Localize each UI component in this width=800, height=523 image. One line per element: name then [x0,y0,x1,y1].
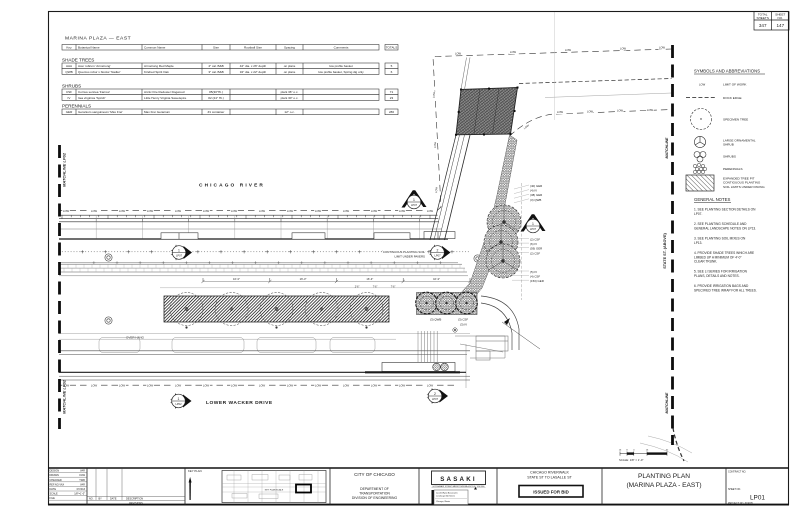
svg-text:LOW: LOW [557,110,563,114]
svg-text:1/8"=1'-0": 1/8"=1'-0" [74,493,85,496]
svg-text:SHRUBS: SHRUBS [723,155,736,159]
svg-text:(MARINA PLAZA - EAST): (MARINA PLAZA - EAST) [626,482,701,489]
svg-text:(2) CSF: (2) CSF [530,238,540,242]
svg-text:LOW: LOW [427,383,433,387]
svg-text:MATCHLINE LP02: MATCHLINE LP02 [62,152,67,187]
svg-text:LOWER WACKER DRIVE: LOWER WACKER DRIVE [206,400,273,406]
svg-text:1: 1 [413,198,415,202]
svg-text:Key: Key [66,46,72,50]
svg-text:ISSUED FOR BID: ISSUED FOR BID [533,489,569,494]
svg-text:(5) IV: (5) IV [530,270,537,274]
svg-text:(153) GER: (153) GER [530,279,544,283]
svg-text:TWR: TWR [79,479,85,482]
svg-text:KAW: KAW [79,474,85,477]
svg-text:Armstrong Red Maple: Armstrong Red Maple [144,64,174,68]
svg-text:plant 36" o.c.: plant 36" o.c. [281,90,299,94]
svg-text:12" o.c.: 12" o.c. [284,110,294,114]
svg-text:on plans: on plans [284,64,296,68]
svg-text:LP07: LP07 [176,253,183,257]
svg-text:AAA: AAA [66,64,73,68]
svg-text:LP07: LP07 [434,253,441,257]
svg-text:(4) IV: (4) IV [530,189,537,193]
svg-text:LP07: LP07 [411,203,418,207]
svg-text:Comments: Comments [334,46,349,50]
svg-text:2: 2 [437,248,439,252]
svg-text:LOW: LOW [119,383,125,387]
svg-text:347: 347 [759,23,767,28]
svg-text:16'-3": 16'-3" [366,277,373,281]
svg-text:SHRUB: SHRUB [723,143,734,147]
svg-text:DRAWN: DRAWN [50,474,60,477]
svg-text:FILE: FILE [50,497,56,500]
svg-text:LOW: LOW [203,209,209,213]
svg-text:DATE: DATE [110,497,117,500]
svg-text:LP07: LP07 [530,227,537,231]
svg-text:VAR: VAR [80,470,85,473]
svg-text:TOTALS: TOTALS [386,46,398,50]
svg-text:low profile basket, Spring dig: low profile basket, Spring dig only [318,70,364,74]
svg-text:LOW: LOW [343,209,349,213]
svg-text:(59) GER: (59) GER [530,247,542,251]
svg-text:Itea virginica 'Sprich': Itea virginica 'Sprich' [78,96,106,100]
svg-text:(3) QWB: (3) QWB [530,198,541,202]
svg-text:LOW: LOW [371,383,377,387]
svg-text:CSF: CSF [66,90,72,94]
svg-text:LOW: LOW [343,383,349,387]
svg-text:LOW: LOW [659,46,665,50]
svg-text:072013: 072013 [77,488,86,491]
svg-text:Arctic Fire Redosier Dogwood: Arctic Fire Redosier Dogwood [144,90,185,94]
svg-text:16'-3": 16'-3" [300,277,307,281]
svg-text:2'-6": 2'-6" [355,287,360,289]
svg-text:plant 30" o.c.: plant 30" o.c. [281,96,299,100]
svg-text:KEY PLAN: KEY PLAN [188,469,202,473]
svg-text:(6) IV: (6) IV [530,242,537,246]
svg-text:16'-3": 16'-3" [233,277,240,281]
svg-text:Acer rubrum 'Armstrong': Acer rubrum 'Armstrong' [78,64,111,68]
svg-text:LOW: LOW [91,383,97,387]
svg-text:Max Frei Geranium: Max Frei Geranium [144,110,171,114]
svg-text:Jacobs/Ryan Associates: Jacobs/Ryan Associates [436,492,458,495]
svg-text:LOW: LOW [147,383,153,387]
svg-text:MATCHLINE LP02: MATCHLINE LP02 [62,379,67,414]
svg-text:SOIL LIMITS UNDER PAVING: SOIL LIMITS UNDER PAVING [723,185,765,189]
svg-text:(4) CSF: (4) CSF [530,275,540,279]
svg-text:LP07.: LP07. [694,212,702,216]
svg-text:LOW: LOW [119,209,125,213]
svg-text:LOW: LOW [427,209,433,213]
svg-text:DEPARTMENT OF: DEPARTMENT OF [360,487,389,491]
svg-text:Geranium sanguineum 'Max Frei': Geranium sanguineum 'Max Frei' [78,110,123,114]
svg-text:LOW: LOW [587,109,593,113]
svg-text:LOW: LOW [510,50,516,54]
svg-text:PLANTING PLAN: PLANTING PLAN [638,473,690,480]
svg-text:LP13.: LP13. [694,241,702,245]
svg-text:LOW: LOW [647,108,653,112]
svg-text:2: 2 [434,392,436,396]
svg-text:1. SEE PLANTING SECTION DETAIL: 1. SEE PLANTING SECTION DETAILS ON [694,208,756,212]
svg-text:7'-6": 7'-6" [373,287,378,289]
svg-text:REVISIONS: REVISIONS [129,502,143,505]
svg-text:MARINA PLAZA — EAST: MARINA PLAZA — EAST [65,36,131,42]
svg-text:CHICAGO RIVER: CHICAGO RIVER [199,183,265,189]
svg-text:Kindred Spirit Oak: Kindred Spirit Oak [144,70,169,74]
svg-text:(3) CSF: (3) CSF [458,318,468,322]
svg-text:REF.NO.VAX: REF.NO.VAX [50,483,65,486]
svg-text:Rootball Size: Rootball Size [244,46,262,50]
svg-text:SPECIMEN TREE: SPECIMEN TREE [723,118,748,122]
svg-text:MATCHLINE: MATCHLINE [665,137,669,158]
svg-text:Little Henry Virginia Sweetspi: Little Henry Virginia Sweetspire [144,96,187,100]
svg-text:LOW: LOW [315,383,321,387]
svg-text:SHRUBS: SHRUBS [62,84,81,89]
svg-text:LOW: LOW [455,52,461,56]
svg-text:SYMBOLS AND ABBREVIATIONS: SYMBOLS AND ABBREVIATIONS [694,69,760,74]
svg-text:QWB: QWB [65,70,72,74]
svg-text:Chicago, Illinois: Chicago, Illinois [436,501,450,503]
svg-text:Spacing: Spacing [284,46,295,50]
svg-text:SHEET NO.: SHEET NO. [728,488,741,491]
svg-text:CONTRACT NO.: CONTRACT NO. [728,471,746,474]
svg-text:LOW: LOW [399,209,405,213]
svg-text:DATE: DATE [50,488,57,491]
svg-text:LOW: LOW [259,383,265,387]
svg-text:Quercus robur x bicolor 'Nadle: Quercus robur x bicolor 'Nadler' [78,70,121,74]
svg-text:DOCK EDGE: DOCK EDGE [723,96,742,100]
svg-text:Size: Size [213,46,219,50]
svg-text:#5(30"Ht.): #5(30"Ht.) [209,90,223,94]
svg-text:32" dia. x 22" depth: 32" dia. x 22" depth [240,70,267,74]
svg-text:DESIGN: DESIGN [50,470,60,473]
svg-text:5: 5 [391,64,393,68]
svg-text:NO.: NO. [89,497,94,500]
svg-text:CONTINUOUS PLANTING SOIL: CONTINUOUS PLANTING SOIL [383,250,425,254]
svg-text:PERENNIALS: PERENNIALS [723,167,743,171]
svg-text:LOW: LOW [432,91,436,98]
svg-text:(38) GER: (38) GER [530,193,542,197]
svg-text:LOW: LOW [287,383,293,387]
svg-text:CHICAGO RIVERWALK: CHICAGO RIVERWALK [530,471,569,475]
svg-text:BY: BY [99,497,103,500]
svg-text:GENERAL NOTES: GENERAL NOTES [694,197,731,202]
svg-text:SCALE: 1/8" = 1'-0": SCALE: 1/8" = 1'-0" [619,458,643,462]
svg-text:(3) IV: (3) IV [460,322,467,326]
svg-text:7'-6": 7'-6" [391,287,396,289]
svg-text:LOW: LOW [63,209,69,213]
svg-text:16'-3": 16'-3" [433,277,440,281]
svg-text:1: 1 [178,248,180,252]
svg-text:#2 (24" Ht.): #2 (24" Ht.) [208,96,223,100]
svg-text:LOW: LOW [203,383,209,387]
svg-text:DIVISION OF ENGINEERING: DIVISION OF ENGINEERING [352,496,398,500]
svg-text:LOW: LOW [433,141,437,148]
svg-text:SCALE: SCALE [50,493,59,496]
svg-text:PERENNIALS: PERENNIALS [62,104,91,109]
svg-text:23: 23 [390,96,394,100]
svg-text:Common Name: Common Name [144,46,166,50]
svg-text:(40) GER: (40) GER [530,184,542,188]
svg-text:STATE ST. (ABOVE): STATE ST. (ABOVE) [663,233,667,269]
svg-text:147: 147 [776,23,784,28]
svg-text:TRANSPORTATION: TRANSPORTATION [359,492,390,496]
svg-text:NO.: NO. [778,16,784,20]
svg-text:1: 1 [178,397,180,401]
svg-text:LP07: LP07 [432,397,439,401]
svg-text:LP01: LP01 [750,495,765,502]
svg-text:LOW: LOW [287,209,293,213]
svg-text:low profile basket: low profile basket [329,64,353,68]
svg-text:LIMIT OF WORK: LIMIT OF WORK [723,83,747,87]
svg-text:LIMIT UNDER PAVERS: LIMIT UNDER PAVERS [394,255,425,259]
svg-text:CHECKED: CHECKED [50,479,62,482]
svg-text:PROJECT NO. 619005: PROJECT NO. 619005 [728,502,753,505]
svg-text:286: 286 [389,110,394,114]
svg-text:LOW: LOW [434,186,438,193]
svg-text:64 PLEASANT STREET WATERTOWN M: 64 PLEASANT STREET WATERTOWN MA 02472 61… [433,485,485,488]
svg-text:on plans: on plans [284,70,296,74]
svg-text:PLANS, DETAILS AND NOTES.: PLANS, DETAILS AND NOTES. [694,274,740,278]
svg-text:LOW: LOW [617,109,623,113]
svg-text:GENERAL LANDSCAPE NOTES ON LP1: GENERAL LANDSCAPE NOTES ON LP13. [694,226,756,230]
svg-text:KEY PLAN SCALE: KEY PLAN SCALE [265,489,284,492]
svg-text:LOW: LOW [699,83,706,87]
svg-text:CITY OF CHICAGO: CITY OF CHICAGO [354,472,395,477]
svg-text:GER: GER [66,110,73,114]
svg-text:LOW: LOW [371,209,377,213]
svg-text:(3) QWB: (3) QWB [430,318,441,322]
svg-text:LOW: LOW [231,383,237,387]
svg-text:LOW: LOW [175,209,181,213]
svg-text:4" cal. B&B: 4" cal. B&B [208,64,223,68]
svg-text:CLEAR TRUNK.: CLEAR TRUNK. [694,260,717,264]
svg-text:SASAKI: SASAKI [440,476,477,483]
svg-text:Cornus sericea 'Farrow': Cornus sericea 'Farrow' [78,90,110,94]
svg-text:LOW: LOW [620,47,626,51]
svg-text:LOW: LOW [147,209,153,213]
svg-text:Botanical Name: Botanical Name [78,46,100,50]
svg-text:LOW: LOW [315,209,321,213]
svg-text:DESCRIPTION: DESCRIPTION [126,497,143,500]
svg-text:42" dia. x 26" depth: 42" dia. x 26" depth [240,64,267,68]
svg-text:#1 container: #1 container [208,110,225,114]
svg-text:1: 1 [532,222,534,226]
svg-text:STATE ST TO LASALLE ST: STATE ST TO LASALLE ST [527,475,572,479]
svg-text:MATCHLINE: MATCHLINE [665,392,669,413]
svg-text:LOW: LOW [565,48,571,52]
svg-text:6: 6 [391,70,393,74]
svg-text:SHEETS: SHEETS [757,16,769,20]
svg-text:3" cal. B&B: 3" cal. B&B [208,70,223,74]
svg-text:LOW: LOW [231,209,237,213]
svg-text:LOW: LOW [399,383,405,387]
svg-text:SPECIFIED TREE WRAP FOR ALL TR: SPECIFIED TREE WRAP FOR ALL TREES. [694,288,757,292]
svg-text:Landscape Architects: Landscape Architects [436,495,455,498]
svg-text:71: 71 [390,90,394,94]
svg-text:LOW: LOW [259,209,265,213]
svg-text:LOW: LOW [91,209,97,213]
svg-text:LP02: LP02 [175,402,182,406]
svg-text:LOW: LOW [175,383,181,387]
svg-text:VAR: VAR [80,483,85,486]
svg-text:SHADE TREES: SHADE TREES [62,58,94,63]
svg-text:(2) CSF: (2) CSF [530,251,540,255]
